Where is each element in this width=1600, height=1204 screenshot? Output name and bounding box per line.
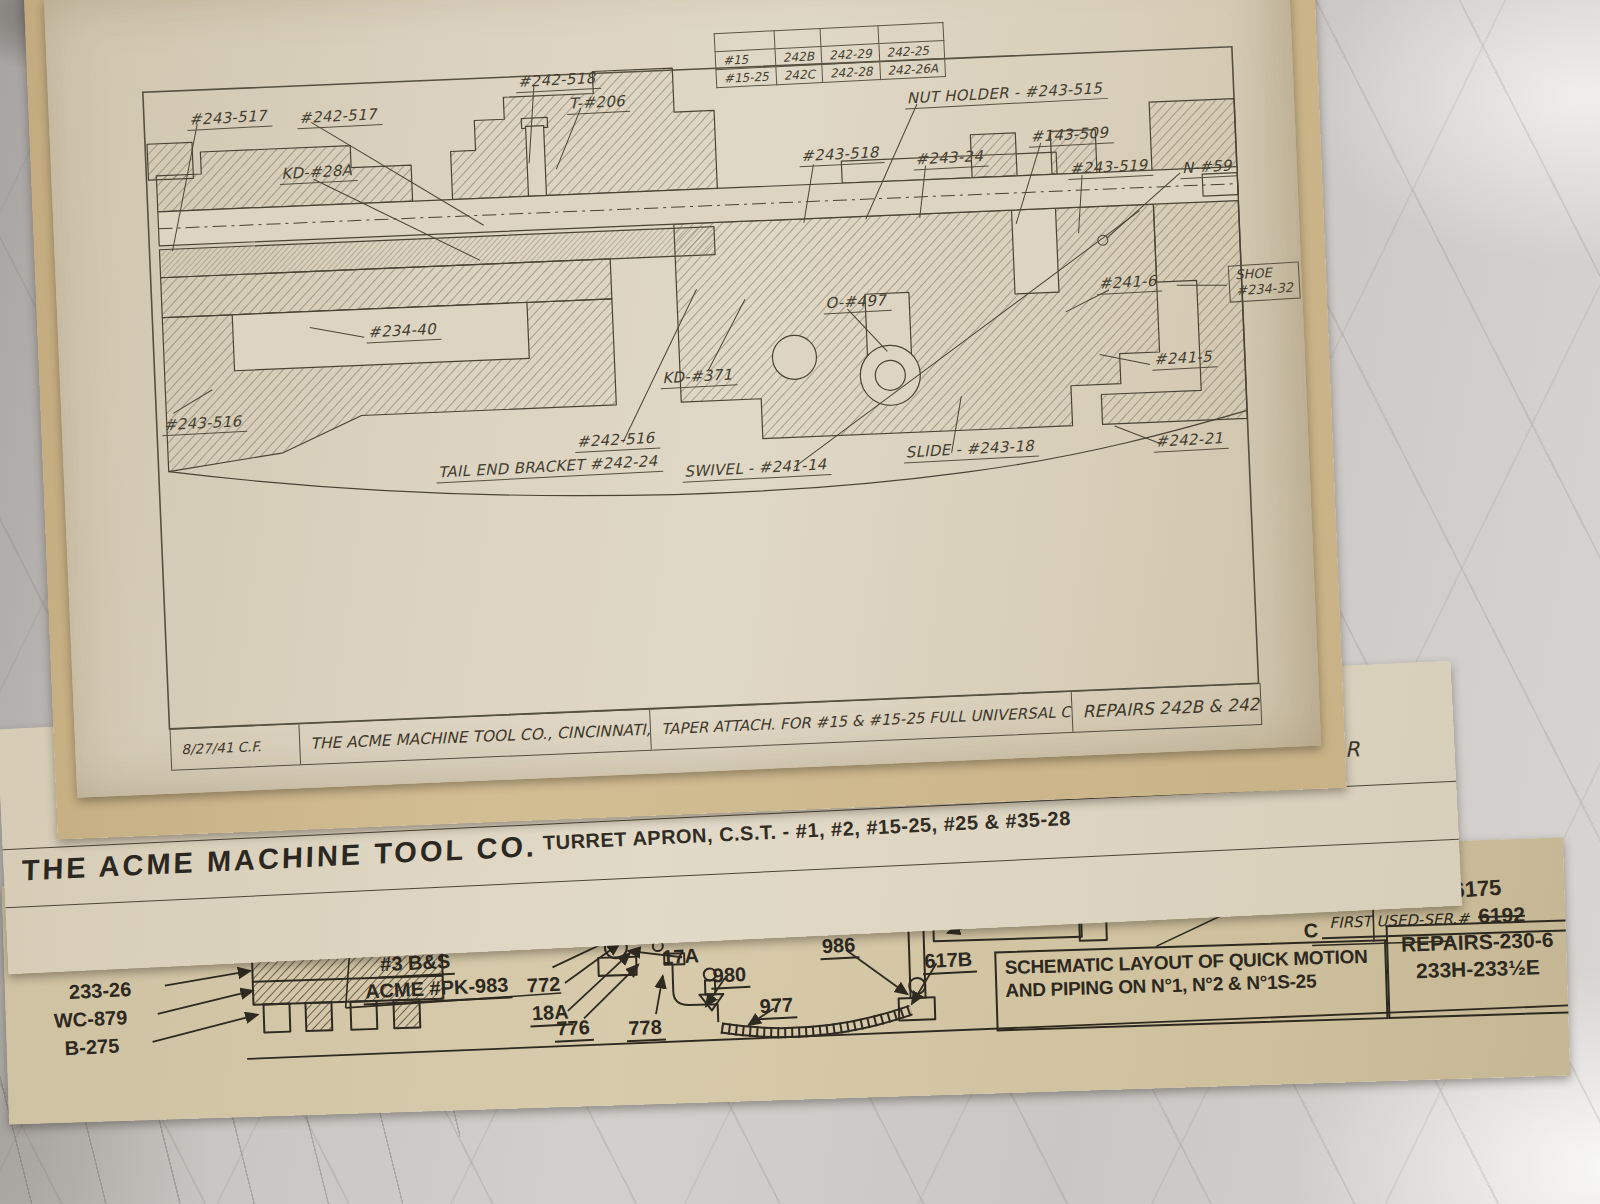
part-label-text: O-#497 [825,291,886,312]
pipe-part-label: 772 [524,973,564,998]
part-label-text: #241-5 [1153,348,1212,369]
part-label: KD-#371 [660,365,738,389]
pipe-part-label: 977 [757,993,798,1020]
part-label: #242-21 [1153,429,1229,453]
part-label-text: #234-40 [368,320,437,342]
pipe-part-label: 778 [626,1015,667,1042]
shoe-label-box: SHOE #234-32 [1228,261,1301,302]
part-label: #234-40 [366,320,442,344]
pipe-part-label: WC-879 [51,1006,131,1033]
part-label-text: #243-516 [163,412,241,434]
part-label: SLIDE - #243-18 [903,436,1039,463]
part-label-text: #242-21 [1155,429,1224,451]
part-label: #242-516 [574,429,660,453]
part-label-text: KD-#371 [662,366,733,388]
part-label-text: T-#206 [568,92,625,113]
pipe-part-label: 980 [710,963,751,990]
part-label-text: #143-509 [1030,124,1108,146]
drawing-repairs: REPAIRS 242B & 242C [1071,684,1262,732]
part-label: KD-#28A [279,161,358,185]
part-label: #243-24 [913,147,989,171]
part-label: O-#497 [823,291,892,315]
part-label-text: #243-519 [1069,156,1147,178]
pipe-part-label: 17A [660,944,704,969]
part-label-text: #243-24 [915,147,984,169]
pipe-part-label-text: WC-879 [53,1006,127,1032]
part-label: NUT HOLDER - #243-515 [904,79,1107,110]
pipe-part-label: 617B [922,948,977,976]
part-label-text: #242-517 [299,105,377,127]
repairs-box-line2: 233H-233½E [1395,953,1562,985]
pipe-part-label: 233-26 [66,978,135,1004]
pipe-part-label-text: 778 [628,1016,662,1040]
pipe-part-label-text: B-275 [64,1035,119,1060]
part-label: TAIL END BRACKET #242-24 [436,452,663,484]
part-label-text: KD-#28A [281,161,353,183]
pipe-part-label-text: 233-26 [68,978,131,1003]
part-label: #241-5 [1151,347,1217,370]
pipe-part-label: 986 [819,933,860,960]
part-label: #243-518 [799,143,885,167]
taper-attachment-sheet: #15 242B 242-29 242-25 #15-25 242C 242-2… [44,0,1321,798]
part-label: N-#59 [1179,156,1237,179]
part-label-text: NUT HOLDER - #243-515 [906,79,1102,107]
part-label-text: #242-516 [576,429,654,451]
part-label: #243-519 [1067,156,1153,180]
part-label-text: #243-518 [801,143,879,165]
pipe-part-label-text: 617B [924,948,973,972]
pipe-part-label: C [1301,919,1323,943]
pipe-part-label-text: 986 [821,934,855,958]
pipe-part-label-text: C [1303,919,1319,942]
part-label: #242-517 [297,105,383,129]
pipe-part-label-text: 977 [759,994,793,1018]
part-label-text: #241-6 [1098,272,1157,293]
pipe-part-label: 776 [554,1016,595,1043]
part-label-text: N-#59 [1181,157,1232,178]
pipe-part-label-text: 980 [712,963,746,987]
part-label: #242-518 [515,69,601,93]
schematic-title-box: SCHEMATIC LAYOUT OF QUICK MOTION AND PIP… [994,939,1388,1031]
company-name: THE ACME MACHINE TOOL CO. [21,830,537,887]
shoe-label-line2: #234-32 [1236,280,1294,300]
part-label-text: TAIL END BRACKET #242-24 [438,452,658,481]
pipe-part-label: B-275 [62,1034,124,1060]
part-label: #143-509 [1028,123,1114,147]
pipe-part-label-text: 772 [526,973,560,997]
part-label-text: SWIVEL - #241-14 [684,455,827,480]
photo-scene: 233-26WC-879B-275#3 B&SACME #PK-98377218… [0,0,1600,1204]
pipe-part-label-text: 776 [556,1016,590,1040]
part-label: T-#206 [566,92,630,115]
part-label: #243-517 [187,107,273,131]
part-label-text: #242-518 [517,69,595,91]
part-label: #243-516 [161,412,247,436]
part-label: SWIVEL - #241-14 [682,455,832,483]
pipe-part-label-text: 17A [662,944,700,968]
repairs-box: REPAIRS-230-6 233H-233½E [1386,919,1569,1019]
part-labels-layer: #243-517#242-517#242-518T-#206KD-#28ANUT… [44,0,1321,798]
drawing-date: 8/27/41 C.F. [171,724,301,769]
part-label: #241-6 [1096,272,1162,295]
part-label-text: #243-517 [189,107,267,129]
part-label-text: SLIDE - #243-18 [905,437,1034,462]
